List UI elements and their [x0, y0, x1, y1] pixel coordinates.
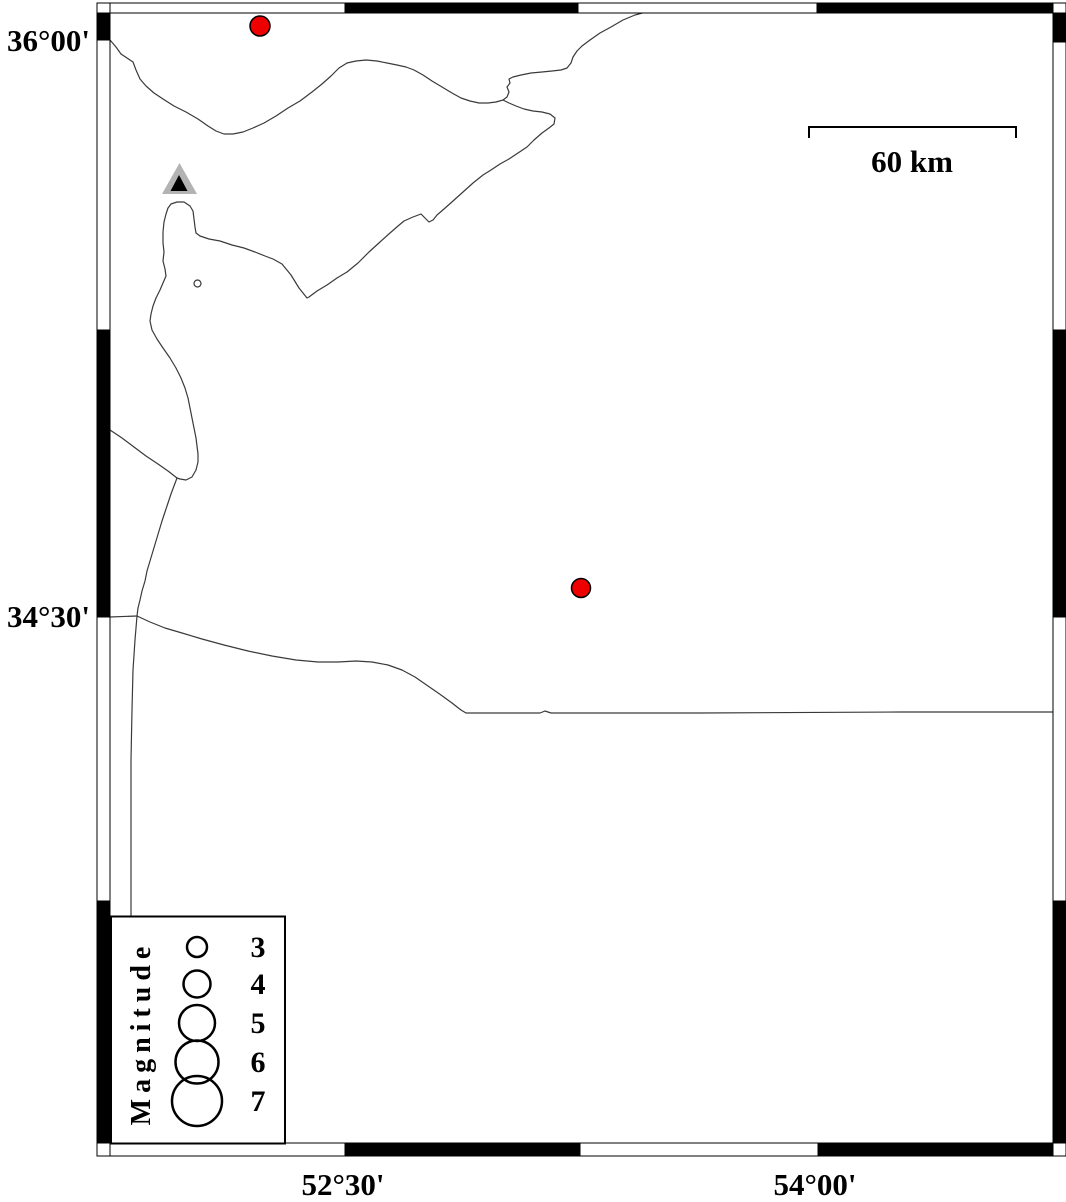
magnitude-legend: Magnitude 3 4 5 6 7	[111, 917, 285, 1144]
frame-right-black-1	[1053, 13, 1066, 42]
frame-left-black-3	[97, 901, 110, 1143]
frame-right-black-2	[1053, 330, 1066, 617]
frame-bottom-black-2	[818, 1143, 1053, 1156]
frame-corner-top-right	[1053, 3, 1066, 13]
lon-label-52-30: 52°30'	[301, 1167, 384, 1202]
earthquake-epicenter-2	[572, 579, 591, 598]
border-south	[131, 616, 137, 916]
frame-left-black-1	[97, 13, 110, 40]
frame-corner-bottom-right	[1053, 1143, 1066, 1156]
caspian-south-coastline	[150, 100, 555, 480]
frame-top-black-2	[817, 3, 1053, 13]
caspian-north-coastline	[110, 11, 661, 134]
map-markers	[162, 16, 591, 598]
legend-label-mag3: 3	[251, 931, 266, 964]
legend-label-mag4: 4	[251, 968, 266, 1001]
frame-corner-bottom-left	[97, 1143, 110, 1156]
map-canvas: 60 km Magnitude 3 4 5 6 7 36°00' 34°30' …	[0, 0, 1066, 1202]
frame-corner-top-left	[97, 3, 110, 13]
frame-left-black-2	[97, 330, 110, 617]
lat-label-36-00: 36°00'	[7, 23, 90, 58]
lat-label-34-30: 34°30'	[7, 599, 90, 634]
frame-top-black-1	[345, 3, 578, 13]
border-northwest	[110, 430, 177, 616]
border-east-west	[137, 616, 1053, 713]
frame-right-black-3	[1053, 901, 1066, 1143]
legend-label-mag5: 5	[251, 1007, 266, 1040]
border-west-stub	[110, 616, 137, 617]
lon-label-54-00: 54°00'	[773, 1167, 856, 1202]
frame-bottom-black-1	[345, 1143, 580, 1156]
scale-bar-label: 60 km	[871, 144, 953, 179]
scale-bar-line	[809, 127, 1016, 138]
legend-title: Magnitude	[126, 941, 157, 1126]
legend-label-mag6: 6	[251, 1046, 266, 1079]
legend-label-mag7: 7	[251, 1085, 266, 1118]
small-lake	[194, 280, 201, 287]
scale-bar: 60 km	[809, 127, 1016, 179]
earthquake-epicenter-1	[250, 16, 270, 36]
